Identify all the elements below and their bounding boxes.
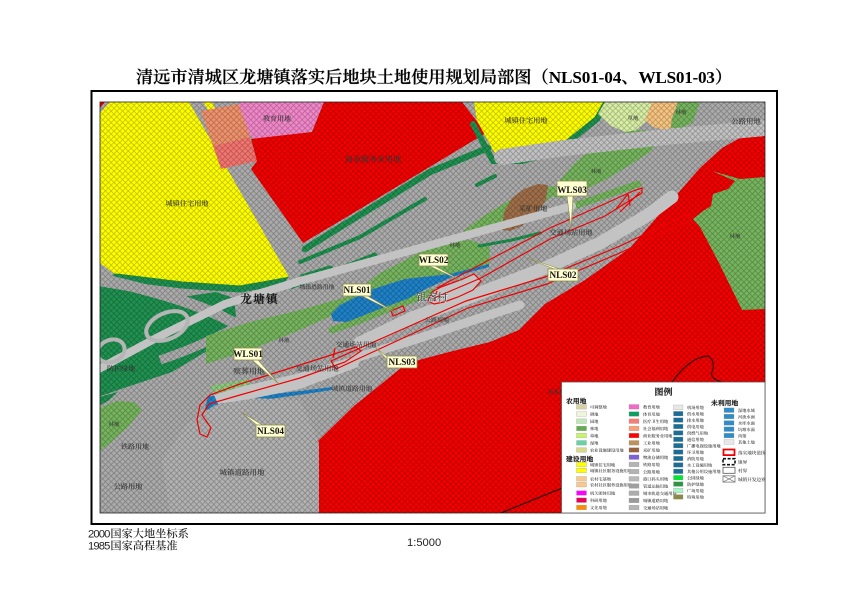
- svg-text:2000: 2000: [88, 529, 110, 541]
- svg-text:NLS03: NLS03: [388, 357, 415, 367]
- svg-text:WLS01: WLS01: [233, 349, 263, 359]
- svg-text:NLS01: NLS01: [343, 285, 370, 295]
- svg-text:NLS04: NLS04: [257, 426, 284, 436]
- svg-text:1985: 1985: [88, 541, 110, 553]
- svg-text:WLS02: WLS02: [419, 255, 449, 265]
- svg-text:1:5000: 1:5000: [407, 537, 441, 549]
- svg-text:NLS02: NLS02: [549, 270, 576, 280]
- svg-text:WLS03: WLS03: [557, 185, 587, 195]
- svg-text:WLS01-03: WLS01-03: [639, 68, 715, 87]
- svg-text:NLS01-04: NLS01-04: [549, 68, 622, 87]
